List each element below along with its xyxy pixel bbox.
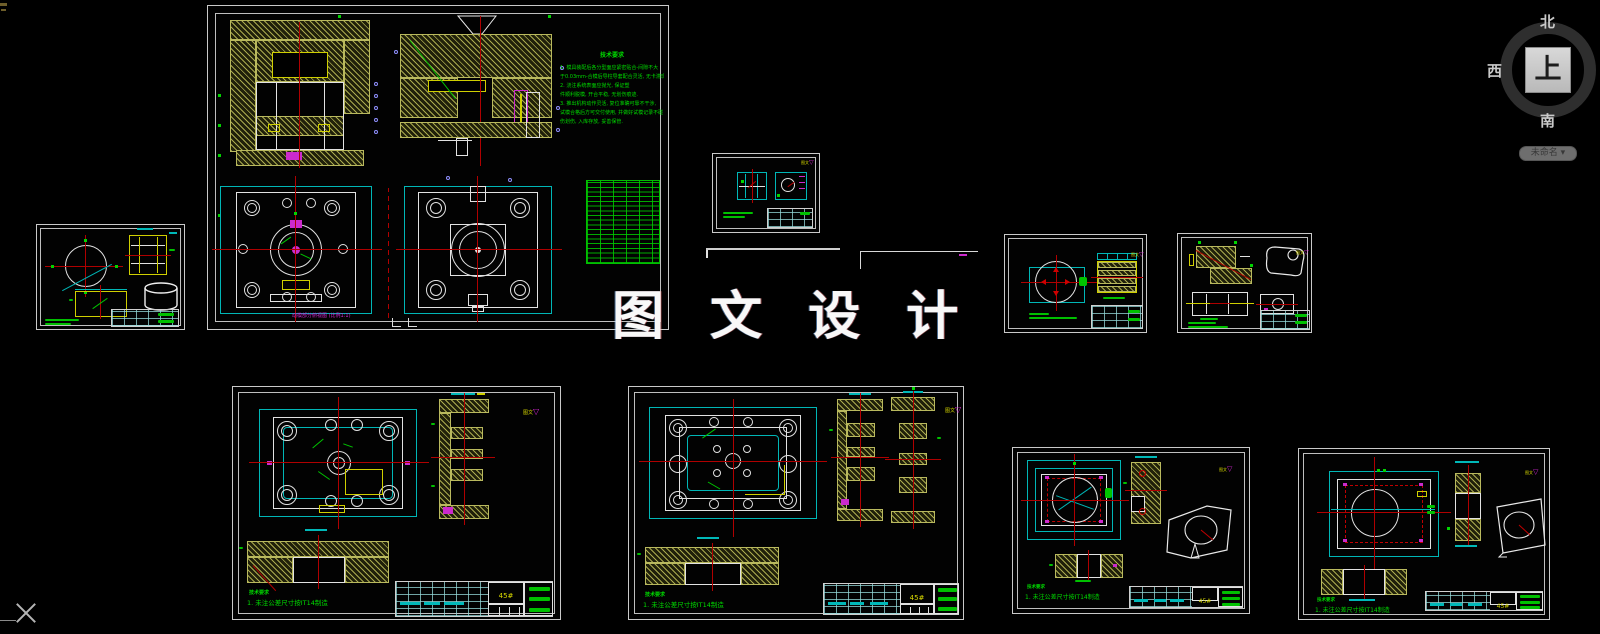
title-text — [1295, 321, 1307, 324]
dim-text — [1200, 318, 1218, 320]
tick — [1250, 264, 1253, 267]
circle-view — [1027, 259, 1095, 309]
hatch-block — [847, 467, 875, 481]
centerline — [752, 169, 753, 203]
brand-logo-text: 图文 — [1296, 250, 1304, 255]
brand-mark — [169, 232, 177, 234]
sheet-bottom-4[interactable]: 技术要求 1. 未注公差尺寸按IT14制造 45# 图文▽ — [1298, 448, 1550, 620]
hatch-block — [451, 427, 483, 439]
pin-hole — [743, 445, 751, 453]
title-cell — [1430, 603, 1444, 606]
brand-logo-icon: ▽ — [955, 405, 961, 414]
cell-line — [499, 607, 500, 615]
cell-line — [910, 607, 911, 613]
sprue-tab — [470, 186, 486, 202]
viewcube-north[interactable]: 北 — [1540, 11, 1555, 32]
org-text — [1222, 591, 1240, 594]
balloon-dot — [446, 176, 450, 180]
note-title: 技术要求 — [1027, 584, 1045, 590]
centerline — [1021, 500, 1129, 501]
centerline — [480, 16, 481, 166]
pin-hole — [713, 469, 721, 477]
edge-line — [131, 263, 165, 264]
pin-hole — [743, 499, 753, 509]
title-text — [1295, 314, 1307, 317]
bolt-circle — [783, 423, 793, 433]
cell-line — [919, 607, 920, 613]
tech-line: 3. 推出机构动作灵活, 复位准确可靠不干涉, — [560, 100, 656, 109]
ejector-tab — [472, 306, 484, 312]
hatch-block — [345, 557, 389, 583]
centerline — [1056, 255, 1057, 311]
insert — [318, 124, 330, 132]
sheet-main-assembly[interactable]: 技术要求 1. 模具装配后各分型面应紧密贴合-间隙不大 于0.03mm-合模后导… — [207, 5, 669, 330]
note-text — [1188, 322, 1216, 324]
bolt-circle — [514, 284, 526, 296]
centerline — [477, 176, 478, 322]
centerline — [299, 22, 300, 168]
hatch-block — [344, 40, 370, 114]
brand-logo-icon: ▽ — [1139, 251, 1144, 258]
edge-line — [1206, 294, 1207, 314]
material-cell: 45# — [1192, 587, 1218, 601]
sheet-bottom-3[interactable]: 技术要求 1. 未注公差尺寸按IT14制造 45# 图文▽ — [1012, 447, 1250, 614]
watermark-text: 图 文 设 计 — [612, 274, 1032, 354]
org-cells — [1218, 587, 1243, 607]
pin-hole — [709, 417, 719, 427]
tick — [218, 154, 221, 157]
centerline — [1364, 565, 1365, 599]
dim-tick — [84, 239, 87, 242]
title-block: 45# — [1425, 591, 1543, 611]
hatch-block — [1055, 554, 1077, 578]
title-cell — [1450, 603, 1462, 606]
tick — [741, 180, 744, 183]
hatch-block — [247, 557, 293, 583]
sheet-part-middle[interactable]: 图文▽ — [712, 153, 820, 233]
centerline — [1125, 490, 1167, 491]
tick — [218, 124, 221, 127]
pin-hole — [325, 419, 337, 431]
dim-text — [431, 423, 435, 425]
dim-text — [169, 249, 175, 251]
bolt-circle — [383, 489, 395, 501]
hatch-mark — [799, 188, 805, 189]
view-right — [775, 170, 809, 202]
brand-logo-text: 图文 — [1219, 467, 1227, 472]
centerline — [431, 457, 495, 458]
material-cell: 45# — [488, 582, 524, 604]
hatch-block — [439, 413, 451, 505]
centerline — [212, 249, 382, 250]
title-cell — [1134, 599, 1148, 602]
insert-outline — [345, 469, 383, 495]
dim-arrow — [1041, 279, 1046, 285]
sheet-part-right-a[interactable]: 图文▽ — [1004, 234, 1147, 333]
note-text — [1029, 317, 1077, 319]
hatch-block — [1196, 246, 1236, 268]
horizontal-section — [645, 543, 779, 587]
centerline — [831, 457, 889, 458]
center-bore — [333, 457, 345, 469]
note-text — [723, 216, 745, 218]
material-value: 45# — [1199, 598, 1212, 605]
hatch-mark — [799, 182, 805, 183]
dim-text — [1105, 488, 1112, 498]
centerline — [913, 391, 914, 529]
mark — [1099, 476, 1103, 479]
title-block — [1091, 305, 1143, 329]
part-3d-view — [1487, 491, 1547, 559]
dim-text — [431, 485, 435, 487]
pin-hole — [709, 499, 719, 509]
brand-logo-text: 图文 — [945, 408, 955, 414]
dim-text — [1049, 564, 1053, 566]
centerline — [249, 462, 429, 463]
gate-mark — [290, 220, 302, 228]
chevron-down-icon: ▾ — [1561, 148, 1566, 158]
insert — [1189, 254, 1194, 266]
edge-line — [1240, 256, 1250, 257]
title-block: 45# — [395, 581, 553, 617]
artifact-glyph — [0, 3, 7, 6]
edge-line — [438, 140, 472, 141]
pin-hole — [306, 198, 316, 208]
centerline — [318, 535, 319, 589]
title-block — [767, 208, 813, 228]
dim-tick — [115, 265, 118, 268]
mark — [1419, 539, 1423, 542]
viewcube-west[interactable]: 西 — [1487, 60, 1502, 81]
hatch-bar — [1098, 278, 1136, 284]
brand-logo-icon: ▽ — [1533, 468, 1538, 476]
dim-text — [69, 299, 73, 301]
vertical-section-a — [837, 399, 883, 521]
note-line: 1. 未注公差尺寸按IT14制造 — [1315, 605, 1390, 614]
section-label — [305, 529, 327, 531]
part-name-text — [1520, 601, 1540, 604]
tech-requirements: 技术要求 1. 模具装配后各分型面应紧密贴合-间隙不大 于0.03mm-合模后导… — [560, 50, 664, 168]
title-block: 45# — [823, 583, 959, 615]
balloon-dot — [374, 130, 378, 134]
title-grid — [1130, 587, 1192, 607]
bolt-circle — [281, 489, 293, 501]
title-block: 45# — [1129, 586, 1243, 608]
hatch-block — [847, 447, 875, 457]
note-text — [723, 212, 753, 214]
detail-line — [520, 94, 522, 124]
bottom-view-left — [1192, 290, 1250, 318]
title-cell — [850, 602, 864, 605]
dim-text — [829, 429, 833, 431]
hole-mark — [1139, 508, 1146, 515]
brand-logo: 图文▽ — [1525, 459, 1538, 478]
centerline — [464, 393, 465, 525]
center-dot — [475, 247, 481, 253]
partial-sheet-edge — [706, 248, 840, 258]
dim-text — [937, 437, 941, 439]
centerline — [1091, 277, 1143, 278]
section-label — [697, 537, 719, 539]
tick — [294, 212, 297, 215]
mark — [1113, 564, 1117, 567]
title-text — [800, 212, 810, 215]
cell-line — [1107, 254, 1108, 259]
dim-text — [1079, 277, 1087, 286]
pin-hole — [743, 417, 753, 427]
hatch-block — [741, 563, 779, 585]
plan-view — [259, 405, 417, 521]
bom-table — [586, 180, 660, 264]
tech-line: 于0.03mm-合模后导柱导套配合灵活, 无卡滞现象. — [560, 73, 664, 82]
centerline — [712, 543, 713, 591]
sheet-centerline — [388, 188, 389, 318]
plan-view-b — [404, 182, 554, 320]
bolt-circle — [430, 284, 442, 296]
balloon-dot — [374, 118, 378, 122]
tick — [777, 194, 780, 197]
part-name-text — [938, 597, 957, 601]
horizontal-section — [247, 535, 389, 585]
brand-logo-icon: ▽ — [1227, 465, 1232, 473]
bolt-circle — [327, 203, 337, 213]
edge-line — [324, 82, 325, 150]
dim-text — [637, 553, 641, 555]
runner-band — [428, 80, 486, 92]
dim-text — [1123, 482, 1127, 484]
mark — [1045, 520, 1049, 523]
edge-line — [75, 289, 127, 290]
hatch-block — [230, 40, 256, 152]
centerline — [1088, 550, 1089, 582]
hatch-block — [451, 469, 483, 481]
brand-logo-text: 图文 — [801, 160, 809, 165]
section-view — [129, 233, 169, 277]
brand-logo: 图文▽ — [1219, 456, 1232, 475]
tech-line: 伤划伤, 入库存放, 妥善保管. — [560, 118, 623, 127]
centerline — [295, 176, 296, 322]
title-grid — [824, 584, 900, 614]
viewcube[interactable]: 北 西 南 上 未命名 ▾ — [1487, 8, 1600, 168]
hole-mark — [1139, 470, 1146, 477]
centerline — [1074, 454, 1075, 546]
dim-line — [1331, 509, 1435, 510]
title-cell — [828, 602, 846, 605]
material-value: 45# — [499, 592, 514, 600]
centerline — [338, 397, 339, 529]
viewcube-south[interactable]: 南 — [1540, 110, 1555, 131]
pin-hole — [351, 419, 363, 431]
part-name-text — [1222, 597, 1240, 600]
cad-canvas[interactable]: 技术要求 1. 模具装配后各分型面应紧密贴合-间隙不大 于0.03mm-合模后导… — [0, 0, 1600, 634]
center-bore — [1351, 489, 1399, 537]
ejector-row — [270, 294, 322, 302]
centerline — [885, 459, 941, 460]
artifact-glyph — [1, 9, 6, 11]
note-text — [45, 323, 71, 325]
section-label — [1135, 456, 1157, 458]
tick — [218, 94, 221, 97]
ucs-dropdown[interactable]: 未命名 ▾ — [1519, 146, 1577, 161]
brand-logo-icon: ▽ — [533, 407, 539, 416]
bolt-circle — [247, 285, 257, 295]
section-label — [477, 393, 485, 395]
corner-mark — [408, 318, 417, 327]
note-text — [1029, 313, 1049, 315]
mark — [1045, 476, 1049, 479]
insert-outline — [319, 505, 345, 513]
balloon-dot — [374, 82, 378, 86]
edge-mark — [959, 254, 967, 256]
edge-tick — [706, 250, 708, 258]
tick — [1073, 462, 1076, 465]
title-block — [1260, 310, 1310, 330]
centerline — [860, 393, 861, 527]
dim-arrow — [1065, 279, 1070, 285]
hatch-block — [645, 563, 685, 585]
cavity-gap — [1077, 554, 1101, 578]
insert-outline — [1417, 491, 1427, 497]
dept-text — [938, 607, 957, 611]
insert-outline — [282, 280, 310, 290]
gate-mark — [292, 246, 300, 254]
pin-hole — [282, 198, 292, 208]
dim-arrow — [1053, 291, 1059, 296]
centerline — [1256, 304, 1298, 305]
brand-logo: 图文▽ — [1296, 239, 1309, 258]
bolt-circle — [281, 425, 293, 437]
org-cells — [934, 584, 959, 614]
material-value: 45# — [1497, 603, 1510, 610]
vertical-section — [439, 399, 489, 519]
org-text — [529, 587, 550, 591]
vertical-section — [1131, 462, 1163, 528]
section-view-b — [398, 14, 552, 168]
material-value: 45# — [910, 594, 925, 602]
dim-arrow — [1053, 267, 1059, 272]
title-cell — [1170, 599, 1184, 602]
tick — [912, 387, 915, 390]
edge-line — [131, 245, 165, 246]
tick — [1383, 469, 1386, 472]
hatch-bar — [1098, 262, 1136, 268]
title-text — [158, 320, 174, 323]
sheet-bottom-2[interactable]: 技术要求 1. 未注公差尺寸按IT14制造 45# 图文▽ — [628, 386, 964, 620]
brand-logo: 图文▽ — [801, 159, 814, 166]
org-text — [938, 588, 957, 592]
scale-cells — [900, 604, 934, 614]
cavity-gap — [685, 563, 741, 585]
cursor-tail — [0, 620, 16, 621]
note-title: 技术要求 — [1317, 597, 1335, 603]
org-text — [1520, 595, 1540, 598]
crosshair-cursor — [0, 598, 60, 628]
title-cell — [1154, 599, 1166, 602]
tick — [1447, 527, 1450, 530]
corner-mark — [392, 318, 401, 327]
hatch-block — [230, 20, 370, 40]
viewcube-top-face[interactable]: 上 — [1525, 47, 1571, 93]
tech-line: 1. 模具装配后各分型面应紧密贴合-间隙不大 — [560, 64, 658, 73]
tech-line: 2. 浇注系统表面应抛光, 保证塑 — [560, 82, 630, 91]
bolt-circle — [669, 455, 687, 473]
insert — [268, 124, 280, 132]
cell-line — [1117, 254, 1118, 259]
title-cell — [424, 602, 440, 605]
centerline — [1468, 465, 1469, 547]
bolt-circle — [673, 423, 683, 433]
l-section-view — [1196, 246, 1254, 286]
sprue-funnel — [456, 14, 498, 36]
plan-view — [1325, 465, 1447, 565]
sheet-part-right-b[interactable]: 图文▽ — [1177, 233, 1312, 333]
sheet-bottom-1[interactable]: 技术要求 1. 未注公差尺寸按IT14制造 45# 图文▽ — [232, 386, 561, 620]
brand-logo: 图文▽ — [523, 399, 539, 418]
vertical-section — [1453, 467, 1483, 549]
tick — [1198, 241, 1201, 244]
ejector-tab — [468, 294, 488, 306]
note-line: 1. 未注公差尺寸按IT14制造 — [643, 599, 724, 609]
core-outline — [272, 52, 328, 78]
brand-logo-text: 图文 — [1525, 470, 1533, 475]
org-cells — [524, 582, 553, 616]
section-label — [451, 393, 475, 395]
view-left — [737, 172, 769, 202]
mark — [1343, 539, 1347, 542]
section-label — [1455, 461, 1479, 463]
material-cell: 45# — [900, 584, 934, 604]
sheet-part-left[interactable] — [36, 224, 185, 330]
bolt-circle — [673, 495, 683, 505]
dept-text — [1520, 606, 1540, 609]
title-grid — [1426, 592, 1490, 610]
note-title: 技术要求 — [645, 591, 665, 598]
note-text — [1188, 326, 1228, 328]
mark — [1099, 520, 1103, 523]
title-cell — [1468, 603, 1482, 606]
dim-text — [1075, 580, 1091, 582]
tech-title: 技术要求 — [560, 50, 664, 59]
bolt-circle — [783, 495, 793, 505]
title-cell — [400, 602, 420, 605]
part-name-text — [529, 597, 550, 601]
ucs-label: 未命名 — [1531, 148, 1558, 158]
tech-line: 试模合格后方可交付使用, 并做好试模记录不碰 — [560, 109, 663, 118]
bolt-circle — [247, 203, 257, 213]
note-title: 技术要求 — [249, 589, 269, 596]
balloon-dot — [394, 50, 398, 54]
bolt-circle — [514, 202, 526, 214]
plan-view-a — [220, 182, 372, 320]
bolt-circle — [430, 202, 442, 214]
dim-tick — [51, 265, 54, 268]
vertical-section-b — [891, 397, 935, 523]
title-cell — [444, 602, 464, 605]
brand-logo: 图文▽ — [1131, 241, 1144, 260]
plan-view — [1027, 460, 1127, 546]
centerline — [733, 399, 734, 537]
plan-view — [649, 407, 819, 531]
mark — [1419, 483, 1423, 486]
title-grid — [396, 582, 488, 616]
view-label — [137, 228, 153, 230]
note-line: 1. 未注公差尺寸按IT14制造 — [1025, 592, 1100, 601]
pin-hole — [713, 445, 721, 453]
brand-logo: 图文▽ — [945, 397, 961, 416]
bolt-circle — [327, 285, 337, 295]
centerline — [1210, 303, 1230, 304]
hatch-block — [1131, 462, 1161, 524]
